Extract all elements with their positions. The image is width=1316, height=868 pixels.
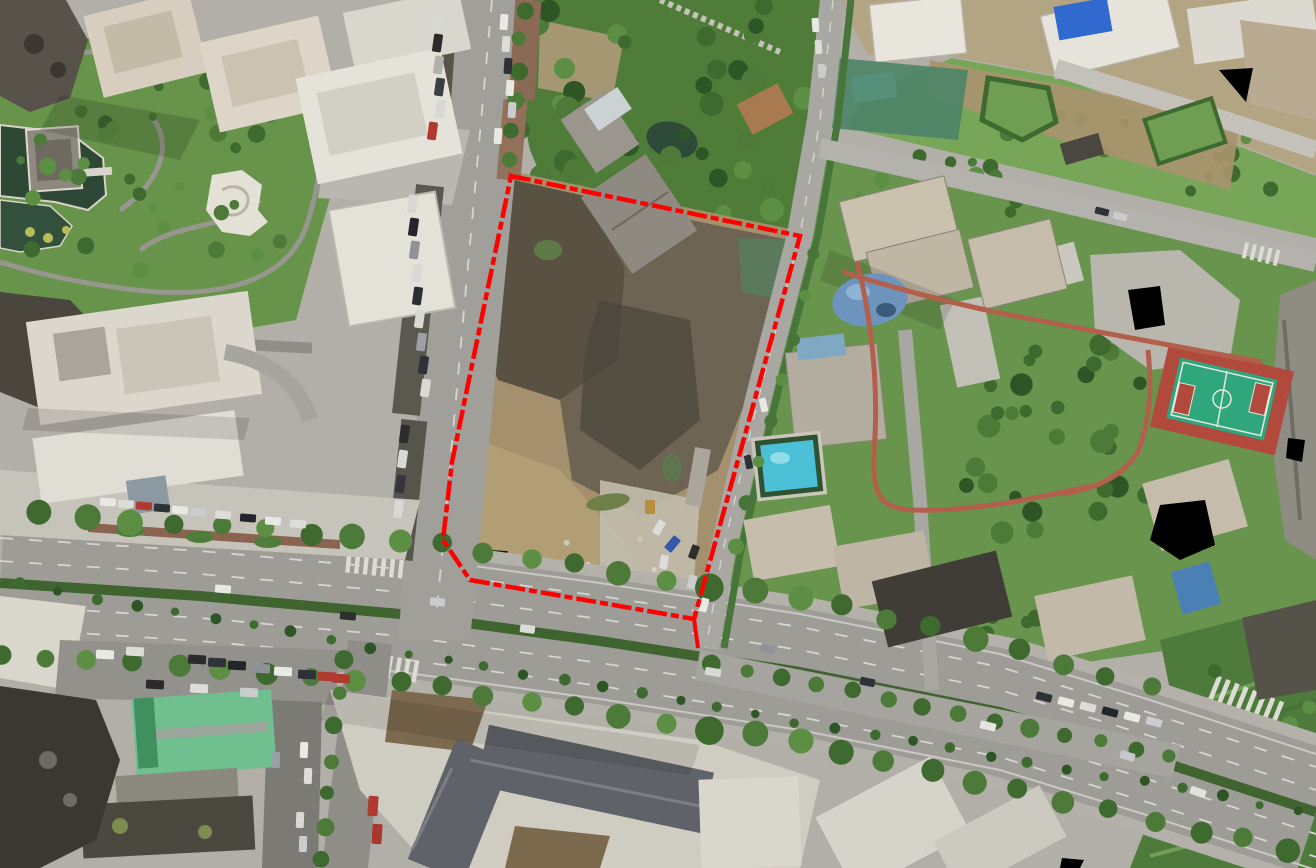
aerial-orthophoto-view <box>0 0 1316 868</box>
aerial-scene-svg <box>0 0 1316 868</box>
